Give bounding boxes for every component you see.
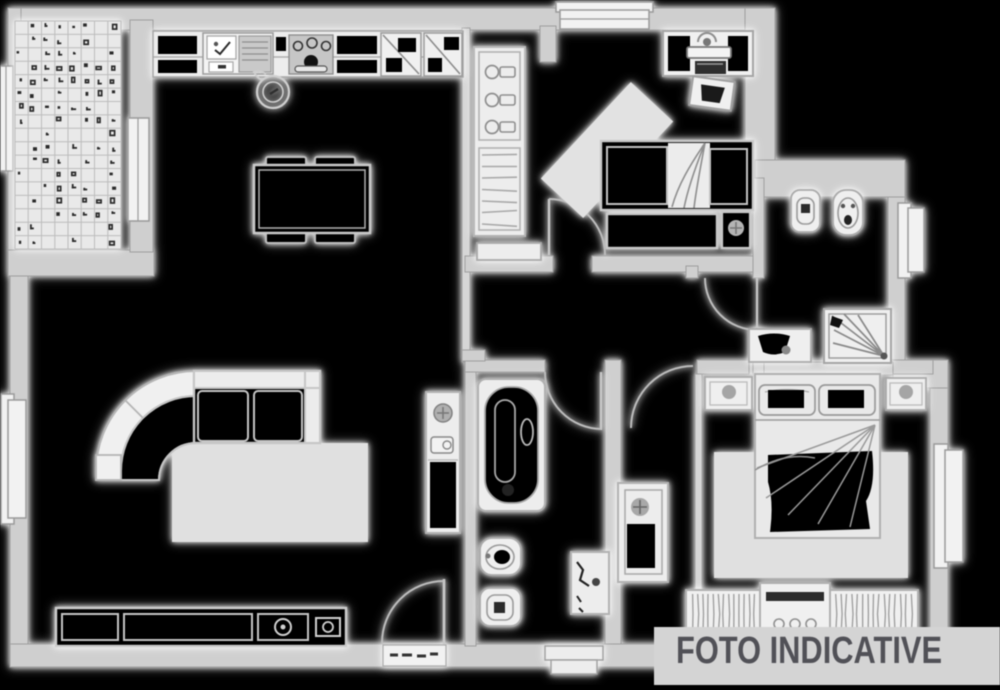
svg-text:FOTO INDICATIVE: FOTO INDICATIVE (676, 630, 942, 672)
